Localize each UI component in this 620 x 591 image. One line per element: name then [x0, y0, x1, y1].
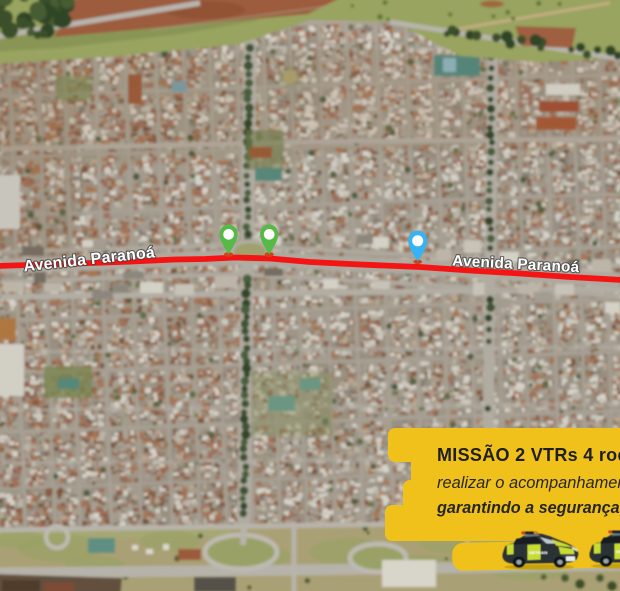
- svg-text:garantindo a segurança,: garantindo a segurança,: [436, 499, 620, 517]
- svg-text:DETRAN: DETRAN: [529, 550, 547, 555]
- svg-text:realizar o acompanhamento: realizar o acompanhamento: [437, 474, 620, 492]
- svg-text:MISSÃO 2 VTRs 4 rodas: MISSÃO 2 VTRs 4 rodas: [437, 444, 620, 465]
- svg-text:DETRAN: DETRAN: [616, 549, 620, 554]
